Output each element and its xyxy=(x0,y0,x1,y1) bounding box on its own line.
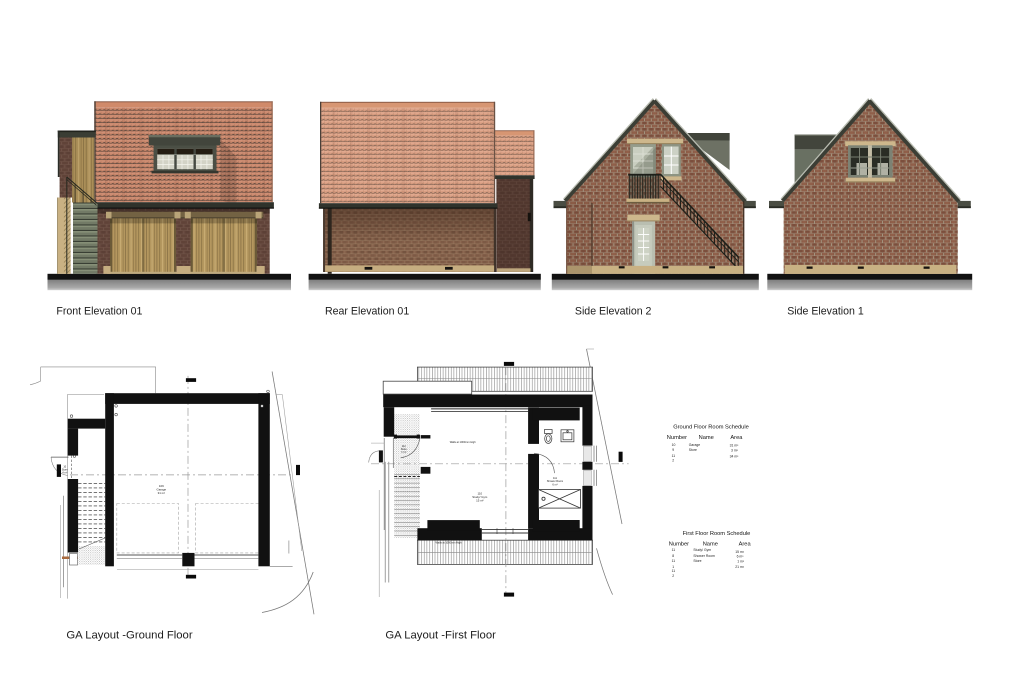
svg-text:15 m²: 15 m² xyxy=(735,550,745,554)
svg-text:Number: Number xyxy=(669,542,689,548)
svg-text:3 m²: 3 m² xyxy=(731,448,739,452)
svg-text:2: 2 xyxy=(672,458,674,462)
svg-text:Name: Name xyxy=(699,435,714,441)
svg-text:11: 11 xyxy=(672,548,676,552)
svg-text:First Floor Room Schedule: First Floor Room Schedule xyxy=(683,531,751,537)
svg-text:Name: Name xyxy=(703,542,718,548)
svg-text:Area: Area xyxy=(730,435,743,441)
svg-text:Ground Floor Room Schedule: Ground Floor Room Schedule xyxy=(673,425,749,431)
svg-text:Walls at 1000mm High: Walls at 1000mm High xyxy=(450,440,477,444)
svg-text:GA Layout -First Floor: GA Layout -First Floor xyxy=(385,630,496,642)
svg-text:34 m²: 34 m² xyxy=(730,455,740,459)
svg-text:9: 9 xyxy=(672,448,674,452)
svg-text:1 m²: 1 m² xyxy=(401,451,406,454)
svg-text:Front Elevation 01: Front Elevation 01 xyxy=(56,306,142,318)
svg-text:Area: Area xyxy=(739,542,752,548)
svg-text:10: 10 xyxy=(672,443,676,447)
svg-text:Side Elevation 1: Side Elevation 1 xyxy=(787,306,864,318)
svg-text:15 m²: 15 m² xyxy=(476,499,483,503)
svg-text:6 m²: 6 m² xyxy=(552,482,557,486)
svg-text:31 m²: 31 m² xyxy=(730,444,740,448)
svg-text:Shower Room: Shower Room xyxy=(693,554,715,558)
svg-text:31 m²: 31 m² xyxy=(158,491,165,495)
svg-text:1 m²: 1 m² xyxy=(737,559,745,563)
svg-text:Study/ Gym: Study/ Gym xyxy=(693,548,711,552)
svg-text:2: 2 xyxy=(672,574,674,578)
svg-text:Number: Number xyxy=(667,435,687,441)
svg-text:11: 11 xyxy=(672,569,676,573)
svg-text:GA Layout -Ground Floor: GA Layout -Ground Floor xyxy=(66,630,192,642)
svg-text:Rear Elevation 01: Rear Elevation 01 xyxy=(325,306,409,318)
svg-text:11: 11 xyxy=(672,559,676,563)
svg-text:Walls at 1000mm High: Walls at 1000mm High xyxy=(436,540,463,544)
svg-text:Store: Store xyxy=(689,448,697,452)
svg-text:8: 8 xyxy=(672,554,674,558)
svg-text:6 m²: 6 m² xyxy=(737,555,745,559)
svg-text:21 m²: 21 m² xyxy=(735,565,745,569)
svg-text:Store: Store xyxy=(693,559,701,563)
svg-text:Side Elevation 2: Side Elevation 2 xyxy=(575,306,652,318)
svg-text:Garage: Garage xyxy=(689,443,700,447)
svg-text:4 m²: 4 m² xyxy=(62,472,67,475)
